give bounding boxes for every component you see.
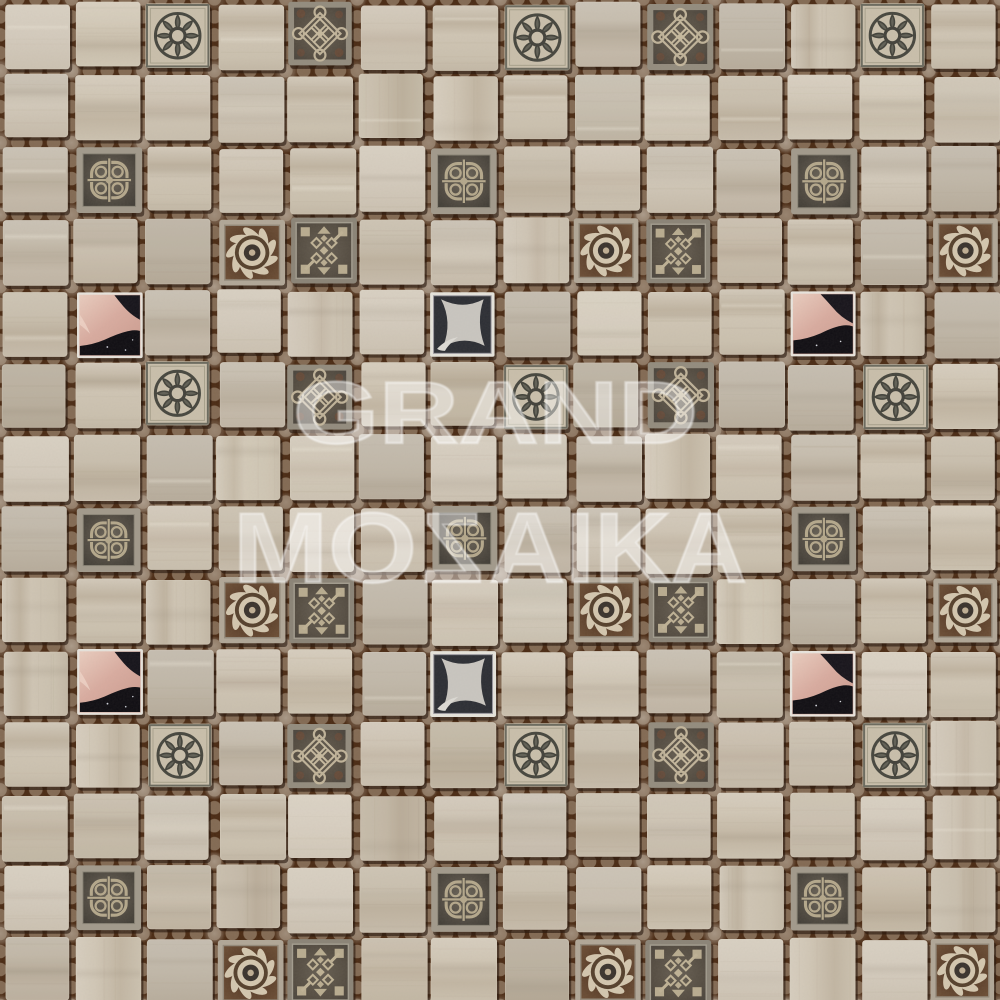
svg-text:GRAND: GRAND: [293, 363, 698, 462]
svg-text:AIKA: AIKA: [489, 492, 747, 603]
svg-text:Z: Z: [423, 492, 483, 603]
svg-text:MO: MO: [233, 492, 417, 603]
